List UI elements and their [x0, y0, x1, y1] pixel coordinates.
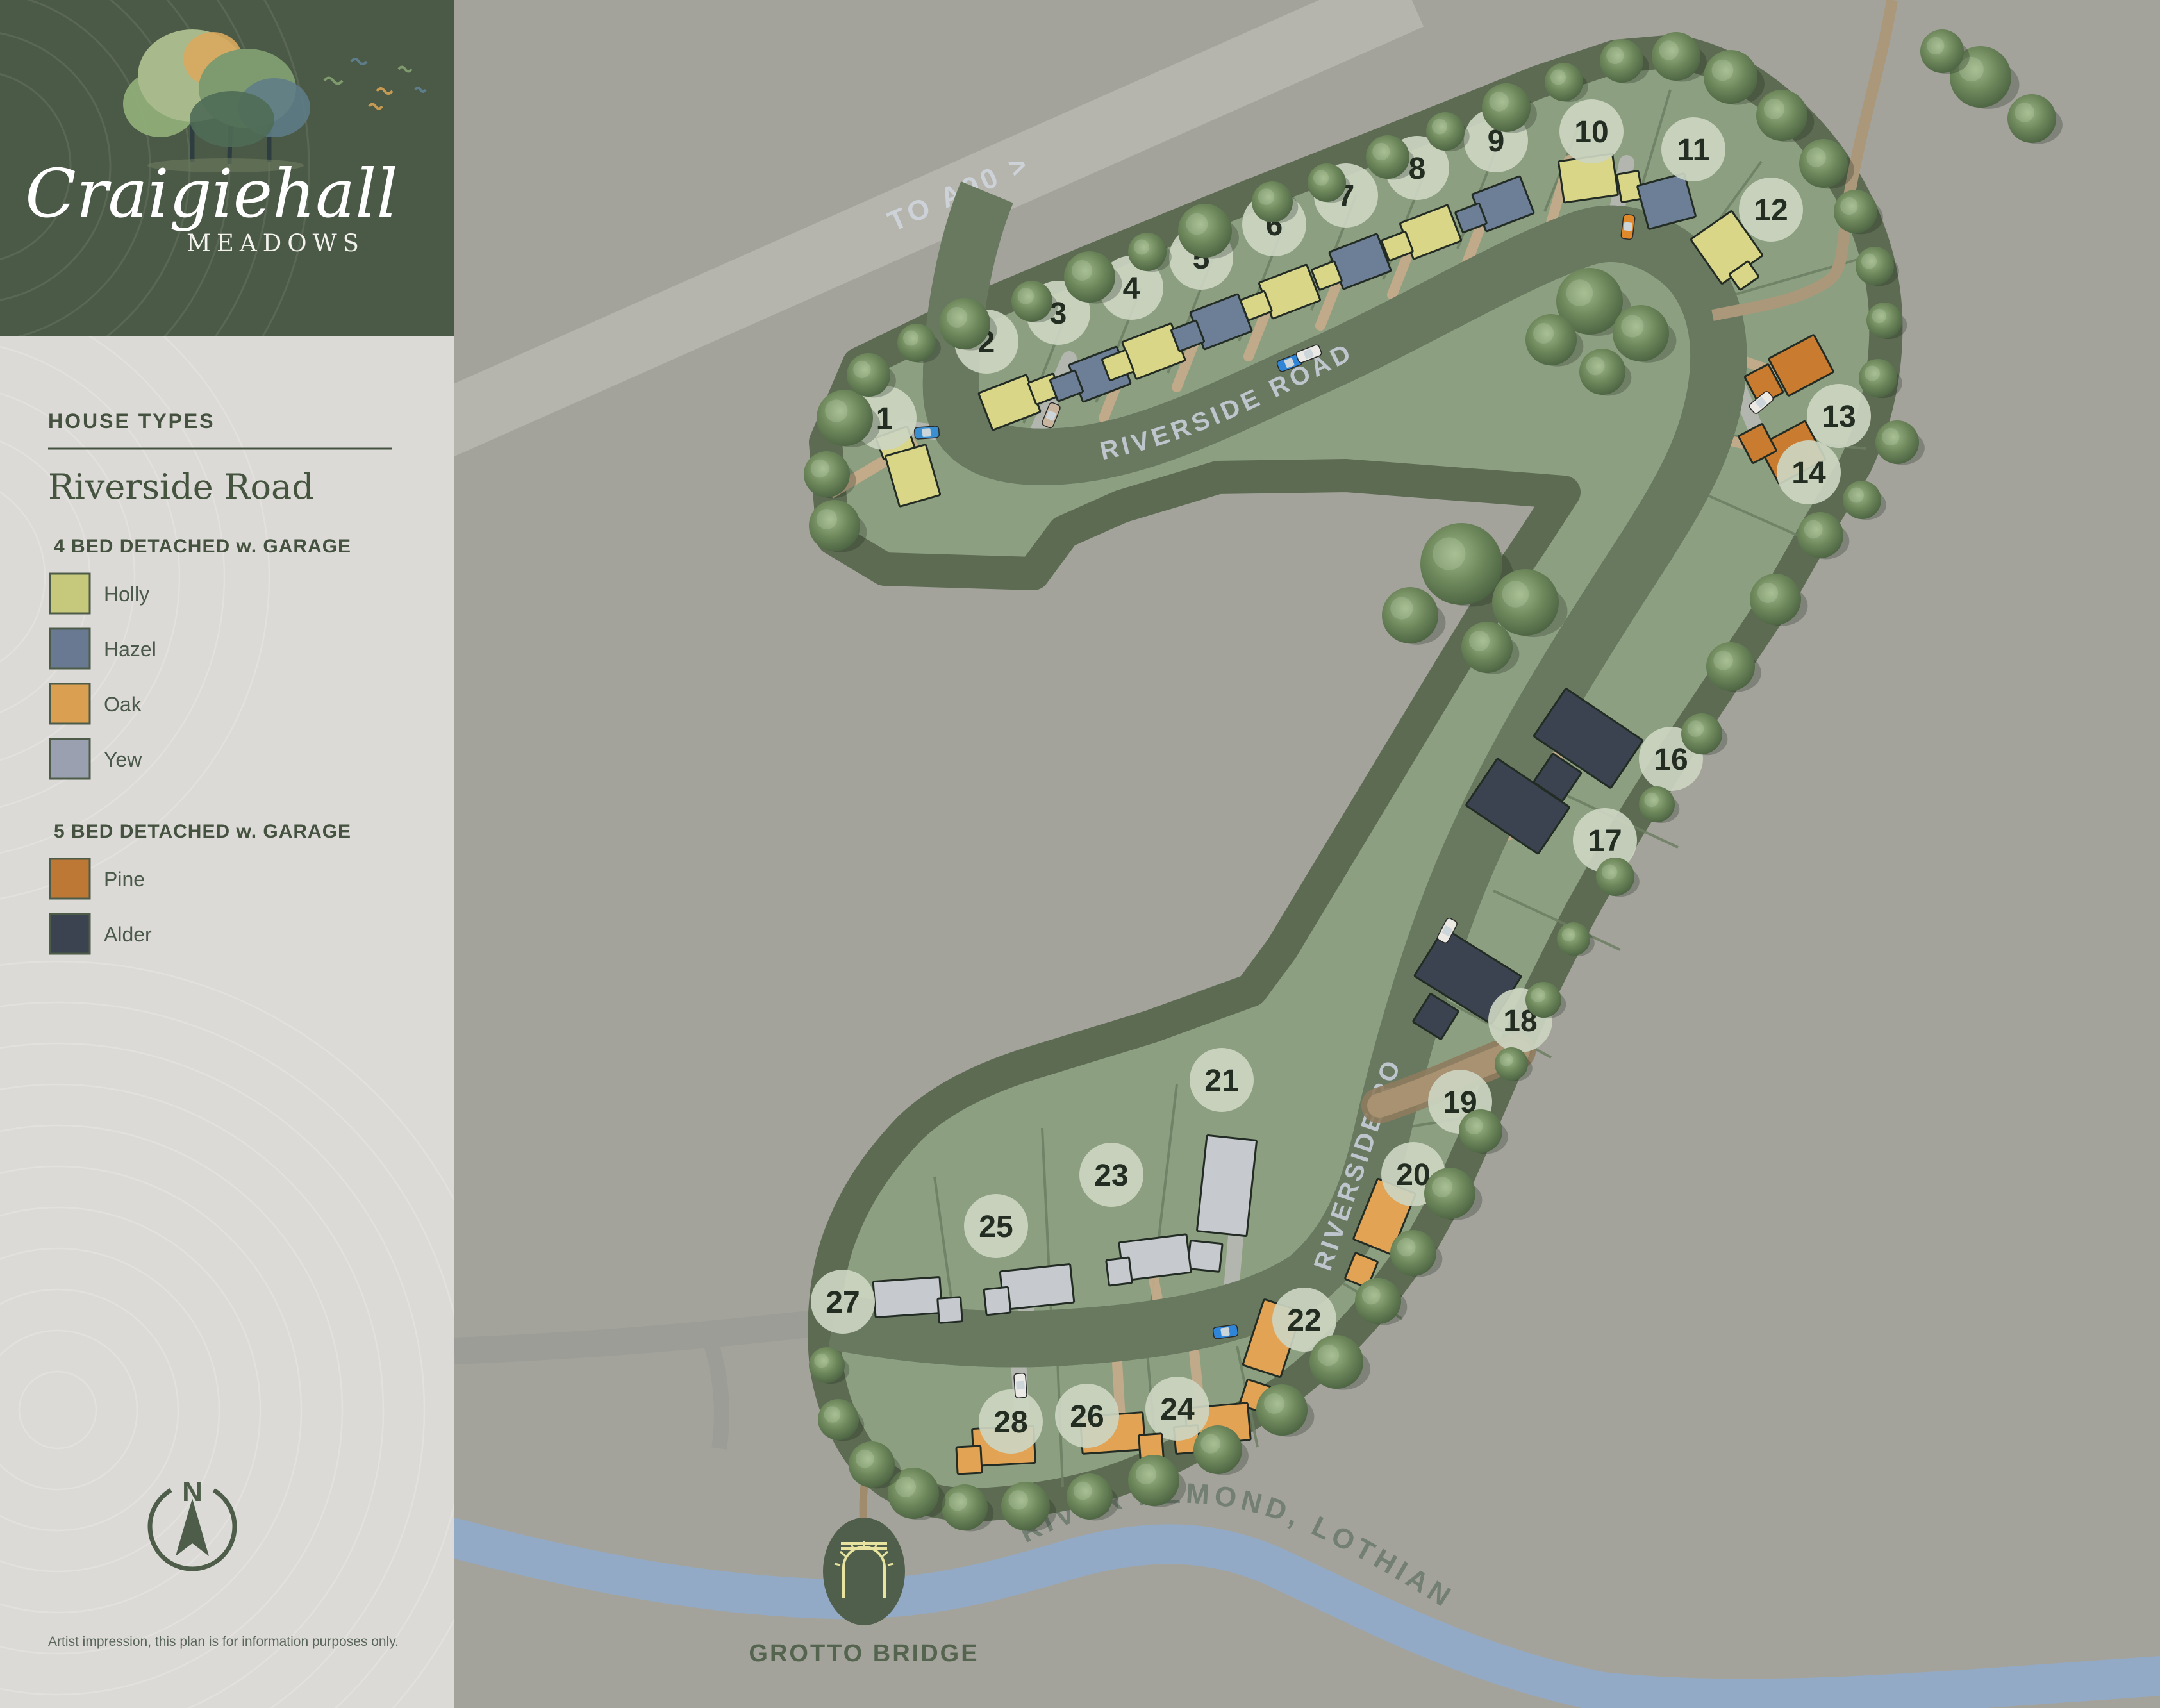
legend-label: Holly: [104, 583, 149, 606]
legend-swatch: [50, 629, 90, 668]
legend-title: HOUSE TYPES: [48, 410, 215, 433]
plot-number: 12: [1754, 194, 1788, 228]
house-yew: [938, 1297, 963, 1323]
car-icon: [1621, 214, 1635, 240]
legend-group-title: 5 BED DETACHED w. GARAGE: [54, 821, 351, 842]
house-yew: [1188, 1241, 1222, 1272]
compass-north-label: N: [182, 1476, 203, 1507]
legend-label: Yew: [104, 748, 142, 771]
legend-label: Hazel: [104, 638, 156, 661]
plot-number: 26: [1070, 1400, 1104, 1434]
plot-number: 16: [1654, 743, 1688, 777]
plot-number: 23: [1094, 1159, 1128, 1193]
plot-number: 22: [1287, 1304, 1321, 1338]
sidebar: Craigiehall MEADOWS HOUSE TYPES Riversid…: [0, 0, 506, 1708]
plot-number: 4: [1123, 272, 1140, 306]
legend-swatch: [50, 574, 90, 613]
house-oak: [956, 1446, 982, 1474]
house-yew: [1000, 1264, 1074, 1309]
grotto-bridge-label: GROTTO BRIDGE: [749, 1640, 979, 1667]
plot-number: 25: [979, 1210, 1013, 1244]
plot-number: 24: [1160, 1393, 1195, 1427]
legend-label: Pine: [104, 868, 145, 891]
plot-number: 10: [1574, 115, 1608, 149]
house-yew: [1106, 1257, 1133, 1286]
brand-name: Craigiehall: [25, 154, 397, 233]
legend-group-title: 4 BED DETACHED w. GARAGE: [54, 536, 351, 557]
car-icon: [914, 426, 939, 440]
legend-label: Alder: [104, 923, 152, 946]
house-yew: [873, 1277, 942, 1317]
plot-number: 21: [1204, 1064, 1238, 1098]
disclaimer-text: Artist impression, this plan is for info…: [48, 1634, 399, 1649]
legend-swatch: [50, 859, 90, 899]
plot-number: 14: [1791, 456, 1826, 490]
legend-swatch: [50, 684, 90, 724]
legend-swatch: [50, 739, 90, 779]
legend-label: Oak: [104, 693, 142, 716]
street-title: Riverside Road: [48, 467, 314, 507]
legend-swatch: [50, 914, 90, 954]
plot-number: 11: [1677, 133, 1710, 167]
site-plan-page: TO A90 > RIVER ALMOND, LOTHIAN RIVERSIDE…: [0, 0, 2160, 1708]
house-yew: [1197, 1135, 1256, 1236]
plot-number: 17: [1588, 824, 1622, 858]
brand-tagline: MEADOWS: [187, 229, 365, 257]
house-yew: [984, 1287, 1011, 1315]
plot-number: 27: [826, 1286, 860, 1320]
car-icon: [1014, 1373, 1027, 1398]
plot-number: 13: [1822, 400, 1856, 434]
plot-number: 28: [993, 1405, 1027, 1439]
